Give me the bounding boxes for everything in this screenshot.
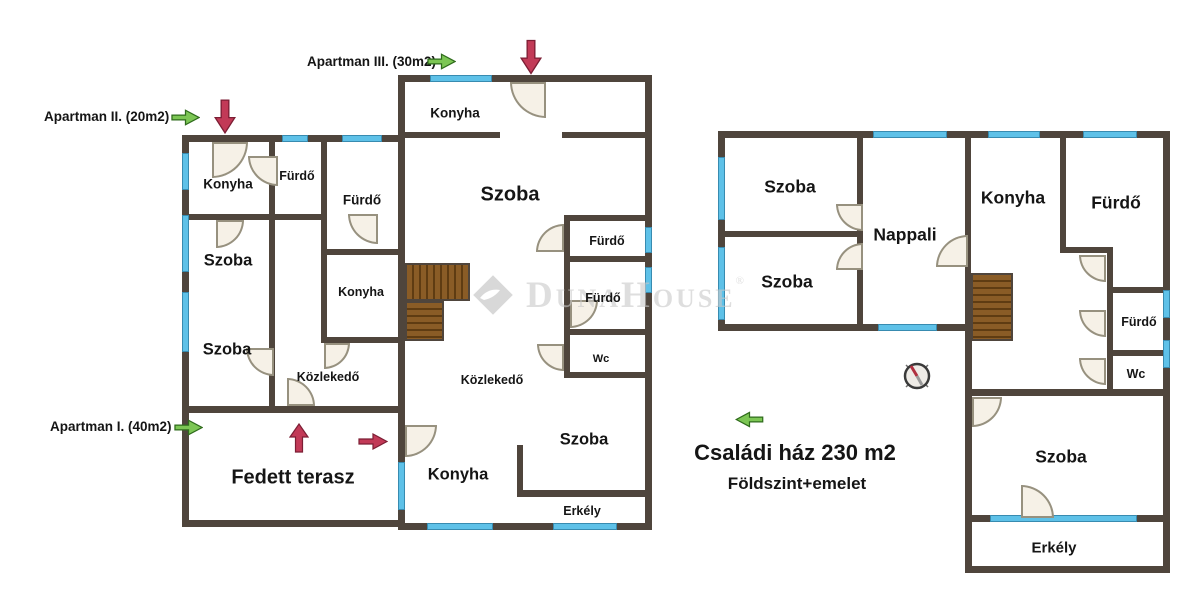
room-label-furdo: Fürdő <box>343 193 381 208</box>
room-label-szoba: Szoba <box>560 431 609 450</box>
compass-icon <box>897 356 937 396</box>
room-label-konyha: Konyha <box>981 188 1045 209</box>
apartman-3-label: Apartman III. (30m2) <box>307 54 436 69</box>
wall <box>725 231 863 237</box>
arrow-up-icon <box>289 423 309 453</box>
wall <box>965 389 1113 396</box>
floor-plan: Konyha Fürdő Fürdő Szoba Konyha Szoba Kö… <box>0 0 1200 600</box>
room-label-konyha: Konyha <box>430 106 480 121</box>
wall <box>1060 247 1113 253</box>
wall <box>564 256 652 262</box>
arrow-down-icon <box>520 39 542 75</box>
room-label-nappali: Nappali <box>873 225 936 246</box>
window <box>182 292 189 352</box>
wall <box>321 255 327 337</box>
window <box>342 135 382 142</box>
door <box>212 142 248 178</box>
wall <box>857 138 863 331</box>
watermark-brand: DunaHouse <box>526 277 736 314</box>
window <box>990 515 1137 522</box>
wall <box>564 329 652 335</box>
wall <box>182 520 405 527</box>
room-label-furdo: Fürdő <box>1091 193 1141 214</box>
wall <box>1107 287 1170 293</box>
room-label-furdo: Fürdő <box>589 234 624 248</box>
door <box>405 425 437 457</box>
door <box>1079 310 1106 337</box>
wall <box>523 490 645 497</box>
window <box>1083 131 1137 138</box>
wall <box>562 132 645 138</box>
apartman-2-label: Apartman II. (20m2) <box>44 109 169 124</box>
room-label-konyha: Konyha <box>428 466 489 485</box>
room-label-wc: Wc <box>1127 367 1146 381</box>
door <box>216 220 244 248</box>
stairs <box>971 273 1013 341</box>
room-label-kozlekedo: Közlekedő <box>297 370 360 384</box>
room-label-szoba: Szoba <box>481 184 540 207</box>
window <box>182 215 189 272</box>
door <box>972 397 1002 427</box>
room-label-szoba: Szoba <box>761 272 813 293</box>
wall <box>405 132 500 138</box>
window <box>1163 290 1170 318</box>
door <box>1021 485 1054 518</box>
wall <box>189 214 327 220</box>
window <box>398 462 405 510</box>
window <box>282 135 308 142</box>
wall <box>182 406 405 413</box>
window <box>988 131 1040 138</box>
room-label-furdo: Fürdő <box>585 291 620 305</box>
entrance-arrow-right-icon <box>427 52 456 71</box>
wall <box>564 215 652 221</box>
window <box>878 324 937 331</box>
apartman-1-label: Apartman I. (40m2) <box>50 419 172 434</box>
wall <box>564 372 652 378</box>
door <box>836 243 863 270</box>
stairs <box>405 263 470 301</box>
door <box>836 204 863 231</box>
subtitle: Földszint+emelet <box>728 474 866 494</box>
door <box>1079 358 1106 385</box>
window <box>718 247 725 320</box>
door <box>510 82 546 118</box>
wall <box>269 220 275 406</box>
room-label-erkely: Erkély <box>1031 540 1076 557</box>
room-label-fedett-terasz: Fedett terasz <box>231 467 354 490</box>
wall <box>1107 389 1170 396</box>
wall <box>965 324 972 522</box>
room-label-konyha: Konyha <box>338 285 384 299</box>
wall <box>321 142 327 249</box>
entrance-arrow-right-icon <box>174 418 203 437</box>
room-label-szoba: Szoba <box>764 177 816 198</box>
window <box>182 153 189 190</box>
watermark-registered: ® <box>736 275 744 287</box>
door <box>348 214 378 244</box>
window <box>718 157 725 220</box>
arrow-right-icon <box>358 432 388 451</box>
room-label-szoba: Szoba <box>203 341 252 360</box>
arrow-down-icon <box>214 99 236 134</box>
entrance-arrow-right-icon <box>171 108 200 127</box>
window <box>553 523 617 530</box>
room-label-konyha: Konyha <box>203 177 253 192</box>
wall <box>1163 131 1170 522</box>
door <box>536 224 564 252</box>
stairs <box>405 301 444 341</box>
window <box>427 523 493 530</box>
main-title: Családi ház 230 m2 <box>694 440 896 466</box>
window <box>645 227 652 253</box>
room-label-szoba: Szoba <box>1035 447 1087 468</box>
wall <box>321 249 398 255</box>
room-label-erkely: Erkély <box>563 504 601 518</box>
arrow-left-icon <box>735 411 764 428</box>
room-label-kozlekedo: Közlekedő <box>461 373 524 387</box>
wall <box>1060 138 1066 253</box>
dunahouse-logo-icon <box>466 268 520 322</box>
room-label-furdo: Fürdő <box>279 169 314 183</box>
door <box>537 344 564 371</box>
window <box>873 131 947 138</box>
room-label-wc: Wc <box>593 353 610 365</box>
wall <box>645 75 652 530</box>
room-label-szoba: Szoba <box>204 252 253 271</box>
wall <box>965 566 1170 573</box>
wall <box>1107 253 1113 396</box>
door <box>324 343 350 369</box>
door <box>1079 255 1106 282</box>
window <box>1163 340 1170 368</box>
door <box>936 235 968 267</box>
room-label-furdo: Fürdő <box>1121 315 1156 329</box>
window <box>430 75 492 82</box>
wall <box>1107 350 1170 356</box>
window <box>645 267 652 293</box>
